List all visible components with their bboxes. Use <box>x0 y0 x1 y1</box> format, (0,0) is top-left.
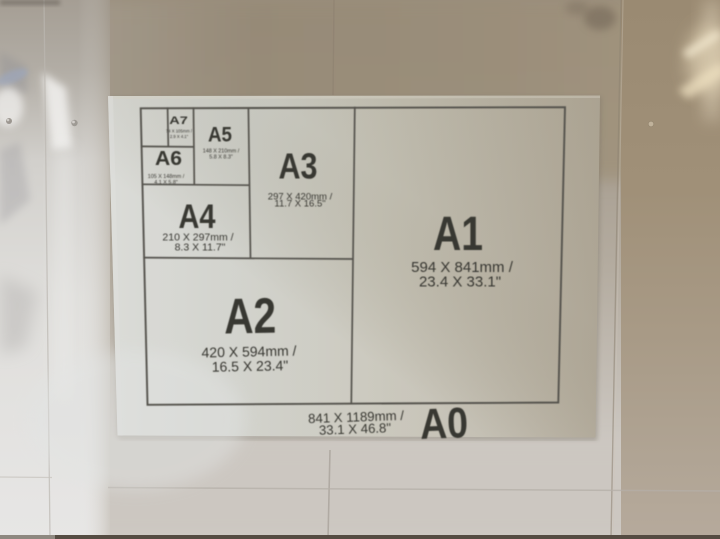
svg-text:4.1 X 5.8": 4.1 X 5.8" <box>154 180 178 186</box>
svg-text:A0: A0 <box>419 399 469 449</box>
svg-text:A6: A6 <box>155 148 182 170</box>
svg-text:5.8 X 8.3": 5.8 X 8.3" <box>209 155 233 161</box>
svg-text:16.5 X 23.4": 16.5 X 23.4" <box>212 357 289 375</box>
svg-text:11.7 X 16.5": 11.7 X 16.5" <box>274 199 325 210</box>
svg-text:A7: A7 <box>169 115 188 127</box>
svg-text:74 X 105mm /: 74 X 105mm / <box>166 129 193 134</box>
svg-text:A3: A3 <box>279 146 318 187</box>
svg-text:A5: A5 <box>208 124 232 147</box>
svg-text:8.3 X 11.7": 8.3 X 11.7" <box>175 242 226 254</box>
svg-text:23.4 X 33.1": 23.4 X 33.1" <box>419 274 501 291</box>
svg-text:A4: A4 <box>179 198 216 236</box>
svg-text:A2: A2 <box>224 288 277 345</box>
svg-text:33.1 X 46.8": 33.1 X 46.8" <box>319 420 392 438</box>
svg-text:2.9 X 4.1": 2.9 X 4.1" <box>170 134 189 139</box>
svg-text:A1: A1 <box>433 208 483 261</box>
